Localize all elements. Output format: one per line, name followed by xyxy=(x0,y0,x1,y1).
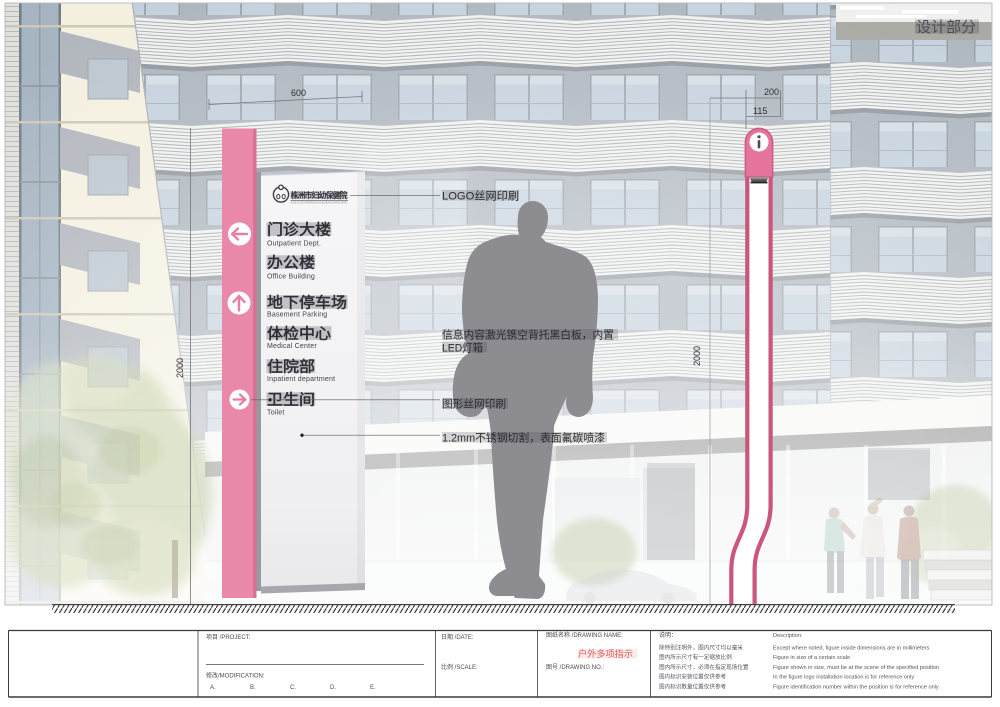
svg-text:门诊大楼: 门诊大楼 xyxy=(267,222,331,239)
svg-text:比例 /SCALE:: 比例 /SCALE: xyxy=(441,663,478,671)
svg-text:Inpatient department: Inpatient department xyxy=(267,376,335,383)
svg-text:地下停车场: 地下停车场 xyxy=(267,295,347,312)
svg-text:ZHUZHOU CITY MATERNAL AND CHIL: ZHUZHOU CITY MATERNAL AND CHILD HEALTH C… xyxy=(291,200,349,204)
svg-text:Toilet: Toilet xyxy=(267,410,285,417)
svg-text:体检中心: 体检中心 xyxy=(267,326,331,343)
svg-text:Basement Parking: Basement Parking xyxy=(267,312,327,319)
svg-text:Figure in size of a certain sc: Figure in size of a certain scale xyxy=(773,655,850,661)
svg-text:除特别注明外，图内尺寸均以毫米: 除特别注明外，图内尺寸均以毫米 xyxy=(659,644,743,652)
svg-text:2000: 2000 xyxy=(175,358,185,378)
svg-text:株洲市妇幼保健院: 株洲市妇幼保健院 xyxy=(291,190,348,200)
svg-text:图号 /DRAWING NO.:: 图号 /DRAWING NO.: xyxy=(546,664,604,671)
svg-text:信息内容激光镌空背托黑白板，内置: 信息内容激光镌空背托黑白板，内置 xyxy=(442,328,614,342)
svg-text:图内所示尺寸有一定缩放比例: 图内所示尺寸有一定缩放比例 xyxy=(659,653,732,661)
svg-text:Except where noted, figure ins: Except where noted, figure inside dimens… xyxy=(773,646,930,652)
svg-text:图内标识数量位置仅供参考: 图内标识数量位置仅供参考 xyxy=(659,682,727,690)
svg-text:Description:: Description: xyxy=(773,633,803,639)
svg-text:115: 115 xyxy=(753,106,767,116)
svg-text:图内所示尺寸，必须在指定现场位置: 图内所示尺寸，必须在指定现场位置 xyxy=(659,663,749,671)
svg-text:600: 600 xyxy=(291,88,306,98)
svg-text:户外多项指示: 户外多项指示 xyxy=(578,648,633,659)
svg-text:说明：: 说明： xyxy=(659,631,677,639)
svg-text:图形丝网印刷: 图形丝网印刷 xyxy=(442,398,506,411)
svg-text:办公楼: 办公楼 xyxy=(267,255,315,272)
svg-text:D.: D. xyxy=(330,685,336,691)
svg-text:Figure identification number w: Figure identification number within the … xyxy=(773,684,939,690)
svg-text:Medical Center: Medical Center xyxy=(267,343,317,350)
svg-text:设计部分: 设计部分 xyxy=(916,19,976,36)
svg-text:In the figure logo installatio: In the figure logo installation location… xyxy=(773,675,914,681)
svg-text:住院部: 住院部 xyxy=(267,358,315,376)
svg-text:A.: A. xyxy=(210,685,216,691)
svg-text:E.: E. xyxy=(370,685,376,691)
svg-text:Office Building: Office Building xyxy=(267,274,315,281)
svg-text:图内标识安装位置仅供参考: 图内标识安装位置仅供参考 xyxy=(659,673,727,681)
svg-text:1.2mm不锈钢切割，表面氟碳喷漆: 1.2mm不锈钢切割，表面氟碳喷漆 xyxy=(442,431,605,445)
svg-text:项目 /PROJECT:: 项目 /PROJECT: xyxy=(206,634,251,641)
svg-text:2000: 2000 xyxy=(692,346,702,366)
svg-text:LOGO丝网印刷: LOGO丝网印刷 xyxy=(442,190,519,203)
svg-text:图纸名称 /DRAWING NAME:: 图纸名称 /DRAWING NAME: xyxy=(546,631,623,639)
svg-text:修改/MODIFICATION:: 修改/MODIFICATION: xyxy=(206,672,265,680)
svg-text:Outpatient Dept.: Outpatient Dept. xyxy=(267,241,321,248)
svg-text:C.: C. xyxy=(290,685,296,691)
svg-text:日期 /DATE:: 日期 /DATE: xyxy=(441,633,474,641)
svg-text:Figure shown in size, must be: Figure shown in size, must be at the sce… xyxy=(773,665,939,671)
svg-text:LED灯箱: LED灯箱 xyxy=(442,341,483,355)
svg-text:200: 200 xyxy=(764,87,779,97)
svg-text:B.: B. xyxy=(250,685,256,691)
